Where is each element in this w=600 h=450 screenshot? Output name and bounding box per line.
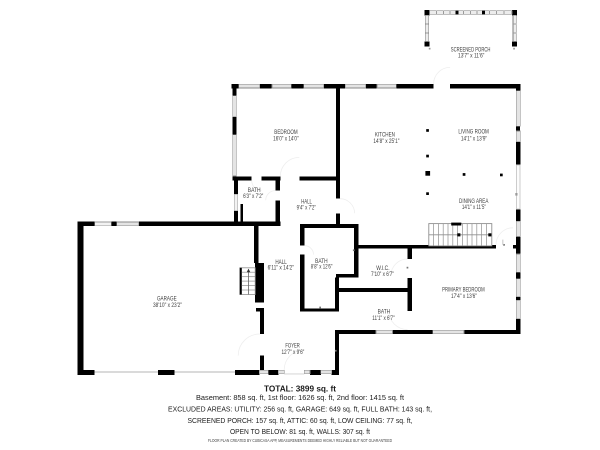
svg-text:6'11" x 14'2": 6'11" x 14'2" <box>268 265 294 272</box>
svg-text:16'0" x 14'0": 16'0" x 14'0" <box>273 136 299 143</box>
svg-text:OPEN TO BELOW: 81 sq. ft, WALL: OPEN TO BELOW: 81 sq. ft, WALLS: 307 sq.… <box>230 427 371 436</box>
svg-text:14'1" x 11'5": 14'1" x 11'5" <box>462 204 486 211</box>
svg-text:7'10" x 6'7": 7'10" x 6'7" <box>371 271 394 278</box>
svg-text:FLOOR PLAN CREATED BY CUBICASA: FLOOR PLAN CREATED BY CUBICASA APP, MEAS… <box>208 438 392 443</box>
svg-text:EXCLUDED AREAS: UTILITY: 256 s: EXCLUDED AREAS: UTILITY: 256 sq. ft, GAR… <box>168 404 432 413</box>
svg-text:6'3" x 7'2": 6'3" x 7'2" <box>243 193 263 200</box>
svg-text:17'4" x 13'6": 17'4" x 13'6" <box>451 293 477 300</box>
svg-text:11'1" x 6'7": 11'1" x 6'7" <box>372 315 395 322</box>
svg-text:12'7" x 9'6": 12'7" x 9'6" <box>281 349 304 356</box>
svg-text:SCREENED PORCH: 157 sq. ft, AT: SCREENED PORCH: 157 sq. ft, ATTIC: 60 sq… <box>188 416 413 425</box>
svg-text:8'8" x 12'6": 8'8" x 12'6" <box>311 264 333 271</box>
svg-text:14'1" x 13'9": 14'1" x 13'9" <box>461 136 487 143</box>
svg-text:14'8" x 25'1": 14'8" x 25'1" <box>373 138 399 145</box>
svg-text:Basement: 858 sq. ft, 1st floo: Basement: 858 sq. ft, 1st floor: 1626 sq… <box>196 393 405 402</box>
svg-text:38'10" x 23'2": 38'10" x 23'2" <box>153 302 182 309</box>
svg-text:9'4" x 7'2": 9'4" x 7'2" <box>297 204 316 211</box>
svg-text:13'7" x 11'6": 13'7" x 11'6" <box>458 52 484 59</box>
